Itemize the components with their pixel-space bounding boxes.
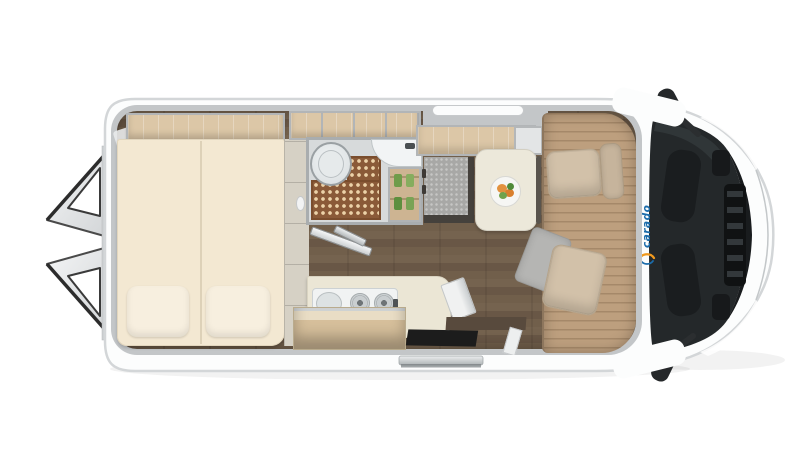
mattress-split [200,141,202,344]
entry-step [406,329,478,346]
bathroom-door-handle [296,196,305,211]
shower-tray [311,180,381,220]
seat-cushion [545,148,602,200]
shower-tray [347,156,381,182]
brand-logo-text: carado [641,205,653,248]
dining-table [475,149,537,231]
driver-seat [543,140,629,208]
handle [422,185,426,194]
food [499,192,507,199]
brand-logo: carado [640,205,654,264]
seat-backrest [599,142,625,199]
bottle [394,174,402,187]
toilet [310,142,352,186]
food [507,183,514,190]
rear-doors [47,146,109,340]
double-bed [117,139,285,346]
plate [490,176,521,207]
cabin-interior [111,105,642,355]
bathroom-shelf [388,167,421,222]
basin-faucet [405,143,415,149]
pillow [127,286,189,337]
slide-rail [399,356,483,368]
table-edge [536,156,541,224]
pillow [206,286,270,337]
bottle [394,197,402,210]
bathroom [306,137,423,225]
handle [422,169,426,178]
open-shelf [293,307,406,350]
side-bench [424,157,474,223]
bottle [406,197,414,210]
seat-cushion [541,243,609,317]
passenger-seat [511,225,619,328]
bathroom-overhead-cabinet [289,111,421,140]
bottle [406,174,414,187]
roof-window [432,105,524,116]
camper-floorplan-image: carado [0,0,796,466]
